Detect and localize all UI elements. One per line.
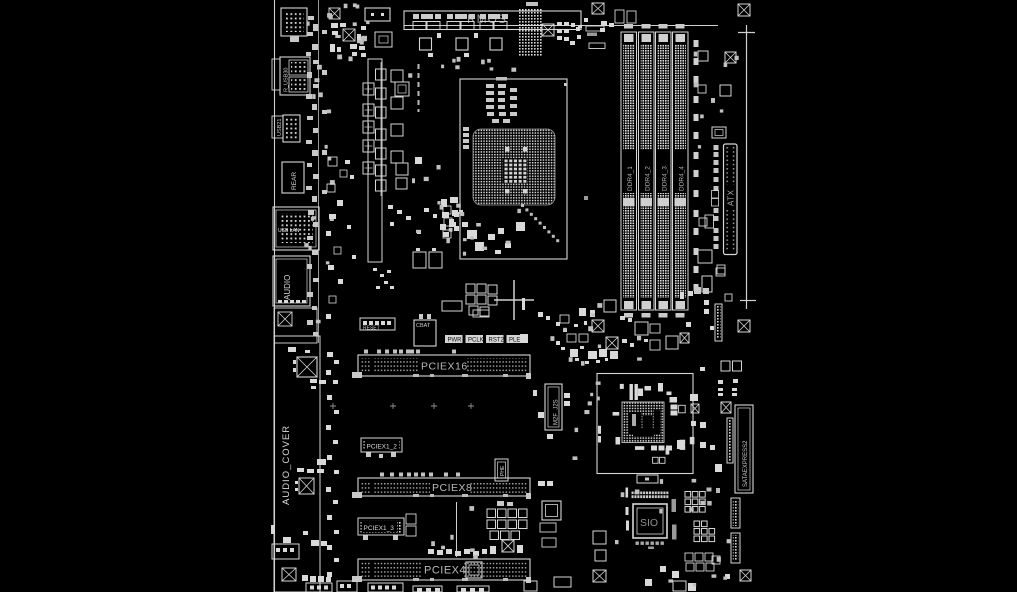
svg-text:AUDIO: AUDIO [283, 275, 292, 300]
svg-text:PCIEX1_2: PCIEX1_2 [367, 444, 398, 451]
svg-text:SIO: SIO [640, 517, 658, 529]
svg-text:RESET: RESET [363, 326, 380, 332]
svg-text:DDR4_1: DDR4_1 [627, 166, 634, 191]
svg-text:CBAT: CBAT [416, 323, 431, 329]
svg-text:USB21: USB21 [277, 119, 283, 136]
svg-text:AUDIO_COVER: AUDIO_COVER [281, 425, 292, 505]
svg-text:PHE: PHE [500, 465, 506, 476]
svg-text:PCIEX4: PCIEX4 [424, 564, 466, 576]
svg-text:USB LAN: USB LAN [278, 228, 300, 234]
svg-text:DDR4_2: DDR4_2 [645, 166, 652, 191]
svg-text:PCIEX1_3: PCIEX1_3 [364, 525, 395, 532]
svg-text:ATX: ATX [727, 189, 736, 206]
svg-text:PCIEX16: PCIEX16 [421, 360, 468, 372]
svg-text:REAR: REAR [291, 172, 298, 190]
svg-text:PCLK: PCLK [468, 338, 484, 344]
svg-text:RST2: RST2 [489, 338, 505, 344]
svg-text:PWR: PWR [448, 338, 463, 344]
svg-text:DDR4_3: DDR4_3 [662, 166, 669, 191]
svg-text:R_USB30: R_USB30 [284, 68, 290, 92]
svg-text:SATAEXPRESS2: SATAEXPRESS2 [743, 440, 749, 487]
svg-text:M2F_J2S: M2F_J2S [554, 399, 560, 425]
svg-text:DDR4_4: DDR4_4 [679, 166, 686, 191]
svg-text:PCIEX8: PCIEX8 [432, 482, 472, 494]
